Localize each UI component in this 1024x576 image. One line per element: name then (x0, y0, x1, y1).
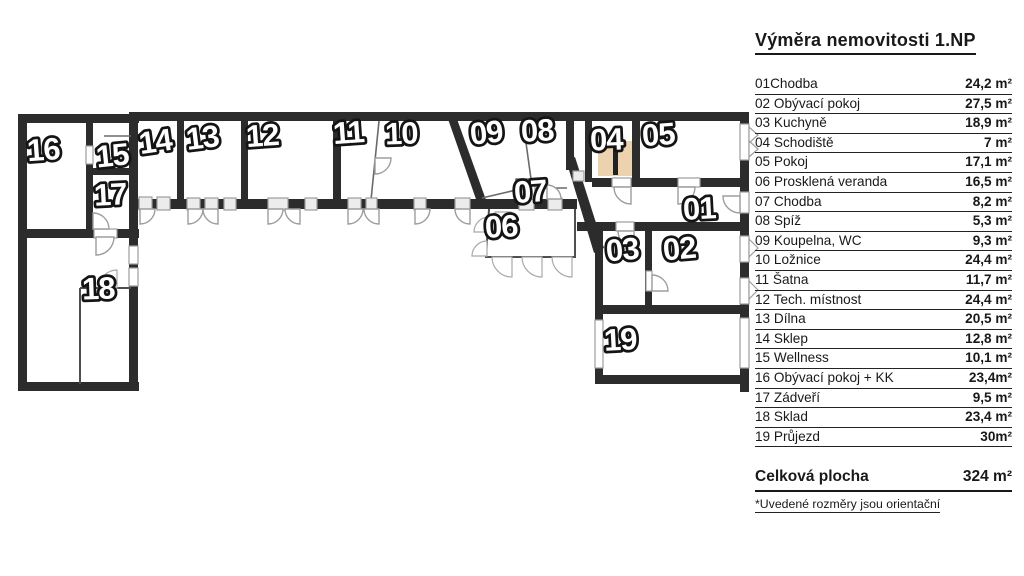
room-name: 07 Chodba (755, 194, 822, 211)
room-label-09: 09 (468, 113, 505, 151)
room-label-16: 16 (26, 131, 62, 168)
room-area: 17,1 m² (965, 154, 1012, 171)
room-name: 03 Kuchyně (755, 115, 827, 132)
legend-row: 18 Sklad 23,4 m² (755, 408, 1012, 428)
room-area: 24,4 m² (965, 252, 1012, 269)
legend-total-row: Celková plocha 324 m² (755, 468, 1012, 492)
room-area: 9,3 m² (973, 233, 1012, 250)
room-area: 24,2 m² (965, 76, 1012, 93)
room-label-18: 18 (81, 270, 115, 306)
room-label-17: 17 (93, 176, 127, 213)
room-name: 13 Dílna (755, 311, 806, 328)
room-label-12: 12 (245, 117, 280, 154)
room-name: 17 Zádveří (755, 390, 820, 407)
total-label: Celková plocha (755, 468, 869, 486)
room-label-11: 11 (332, 114, 366, 151)
room-name: 04 Schodiště (755, 135, 834, 152)
legend-row: 11 Šatna 11,7 m² (755, 271, 1012, 291)
legend-row: 16 Obývací pokoj + KK 23,4m² (755, 369, 1012, 389)
room-area: 27,5 m² (965, 96, 1012, 113)
legend-row: 06 Prosklená veranda 16,5 m² (755, 173, 1012, 193)
room-name: 06 Prosklená veranda (755, 174, 887, 191)
legend-row: 08 Spíž 5,3 m² (755, 212, 1012, 232)
legend-row: 01Chodba 24,2 m² (755, 75, 1012, 95)
legend-row: 19 Průjezd 30m² (755, 428, 1012, 448)
legend-panel: Výměra nemovitosti 1.NP 01Chodba 24,2 m²… (755, 30, 1012, 513)
room-label-14: 14 (137, 122, 176, 161)
room-name: 19 Průjezd (755, 429, 820, 446)
room-area: 5,3 m² (973, 213, 1012, 230)
room-area: 20,5 m² (965, 311, 1012, 328)
room-name: 10 Ložnice (755, 252, 821, 269)
room-label-07: 07 (513, 173, 548, 210)
room-label-19: 19 (603, 321, 638, 358)
room-area: 18,9 m² (965, 115, 1012, 132)
room-name: 05 Pokoj (755, 154, 808, 171)
floor-plan-page: 16 15 17 14 13 12 11 10 09 08 04 05 07 0… (0, 0, 1024, 576)
room-area: 8,2 m² (973, 194, 1012, 211)
total-value: 324 m² (963, 468, 1012, 486)
room-name: 01Chodba (755, 76, 818, 93)
room-area: 7 m² (984, 135, 1012, 152)
legend-row: 10 Ložnice 24,4 m² (755, 251, 1012, 271)
room-name: 18 Sklad (755, 409, 808, 426)
room-label-13: 13 (184, 118, 221, 157)
room-name: 16 Obývací pokoj + KK (755, 370, 894, 387)
legend-rows: 01Chodba 24,2 m² 02 Obývací pokoj 27,5 m… (755, 75, 1012, 447)
legend-row: 12 Tech. místnost 24,4 m² (755, 291, 1012, 311)
room-area: 12,8 m² (965, 331, 1012, 348)
room-label-10: 10 (384, 115, 418, 151)
room-name: 15 Wellness (755, 350, 829, 367)
room-area: 16,5 m² (965, 174, 1012, 191)
room-name: 09 Koupelna, WC (755, 233, 862, 250)
legend-note: *Uvedené rozměry jsou orientační (755, 497, 940, 513)
room-name: 14 Sklep (755, 331, 808, 348)
room-label-15: 15 (94, 136, 131, 174)
plan-openings (86, 124, 758, 368)
legend-row: 13 Dílna 20,5 m² (755, 310, 1012, 330)
room-label-04: 04 (589, 121, 624, 157)
room-name: 11 Šatna (755, 272, 808, 289)
legend-row: 05 Pokoj 17,1 m² (755, 153, 1012, 173)
room-label-01: 01 (682, 190, 717, 227)
room-area: 23,4 m² (965, 409, 1012, 426)
room-area: 23,4m² (969, 370, 1012, 387)
room-area: 9,5 m² (973, 390, 1012, 407)
room-label-02: 02 (661, 230, 696, 268)
room-area: 10,1 m² (965, 350, 1012, 367)
room-name: 12 Tech. místnost (755, 292, 861, 309)
legend-row: 03 Kuchyně 18,9 m² (755, 114, 1012, 134)
legend-row: 15 Wellness 10,1 m² (755, 349, 1012, 369)
room-label-06: 06 (484, 208, 519, 245)
room-area: 24,4 m² (965, 292, 1012, 309)
room-label-08: 08 (520, 112, 555, 149)
room-area: 11,7 m² (966, 272, 1012, 289)
room-name: 02 Obývací pokoj (755, 96, 860, 113)
legend-row: 02 Obývací pokoj 27,5 m² (755, 95, 1012, 115)
legend-row: 07 Chodba 8,2 m² (755, 193, 1012, 213)
page-title: Výměra nemovitosti 1.NP (755, 30, 976, 55)
room-area: 30m² (980, 429, 1012, 446)
room-name: 08 Spíž (755, 213, 801, 230)
legend-row: 09 Koupelna, WC 9,3 m² (755, 232, 1012, 252)
plan-partitions (80, 121, 575, 384)
legend-row: 17 Zádveří 9,5 m² (755, 389, 1012, 409)
room-label-03: 03 (604, 231, 640, 269)
legend-row: 14 Sklep 12,8 m² (755, 330, 1012, 350)
room-label-05: 05 (641, 116, 677, 153)
legend-row: 04 Schodiště 7 m² (755, 134, 1012, 154)
